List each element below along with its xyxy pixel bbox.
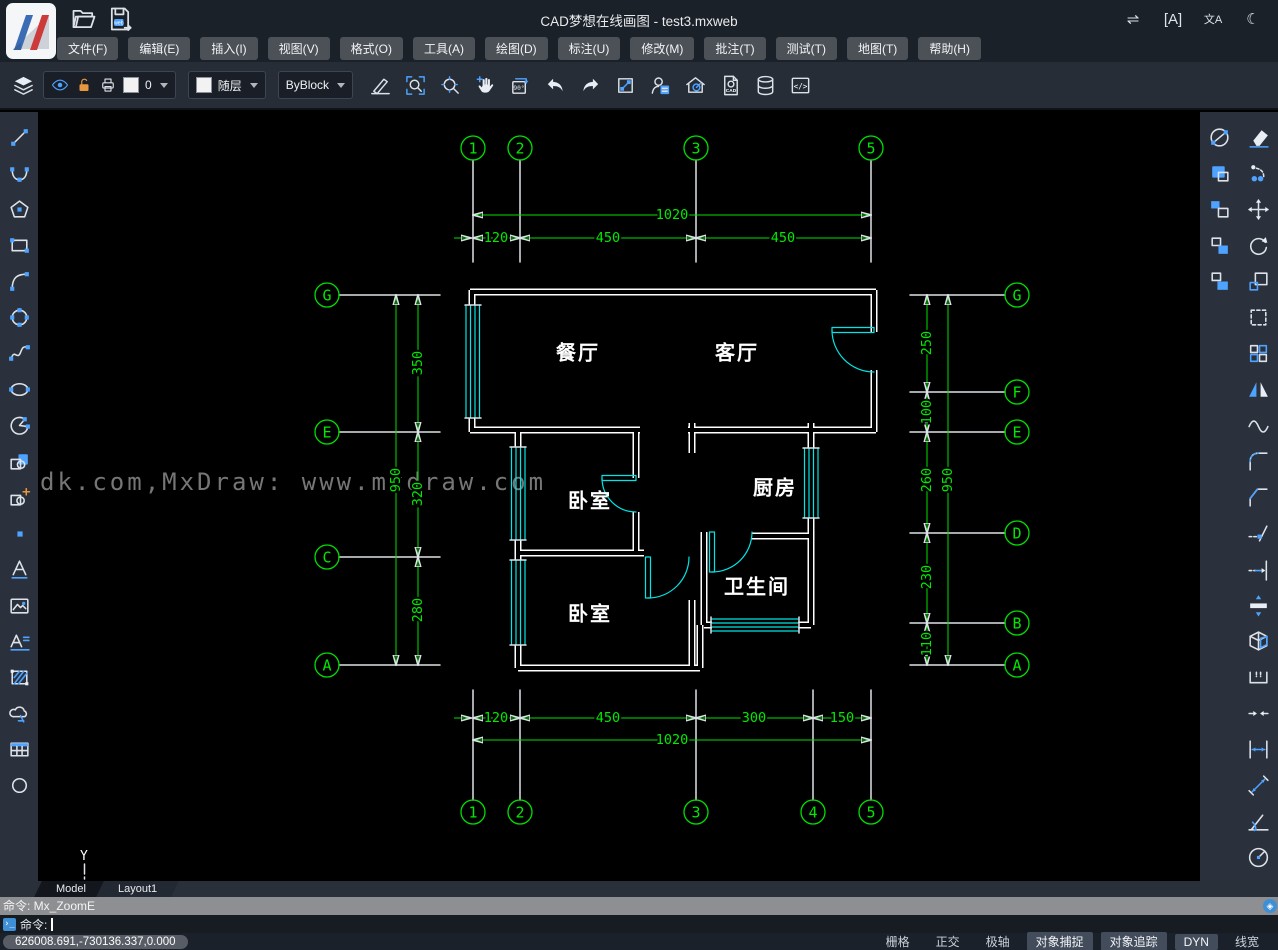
zoom-extents-icon [439,74,462,97]
svg-text:150: 150 [830,710,854,726]
zoom-window-icon [404,74,427,97]
svg-text:300: 300 [742,710,766,726]
statusbar: 626008.691,-730136.337,0.000 栅格正交极轴对象捕捉对… [0,933,1278,950]
modify-tools-panel [1200,112,1278,881]
redo-icon [579,74,602,97]
svg-text:120: 120 [484,230,508,246]
svg-text:B: B [1012,615,1021,633]
menubar-item-1[interactable]: 编辑(E) [128,37,190,60]
svg-text:450: 450 [596,230,620,246]
color-dropdown-caret-icon[interactable] [250,83,258,88]
current-layer-name: 0 [145,78,152,92]
zoom-extents-button[interactable] [435,70,465,100]
ellipse-icon [7,377,32,402]
svg-text:F: F [1012,384,1021,402]
night-mode-icon[interactable]: ☾ [1242,8,1264,30]
copy-icon [1246,161,1271,186]
image-icon [7,593,32,618]
chamfer-icon [1246,485,1271,510]
menubar-item-4[interactable]: 格式(O) [340,37,403,60]
tool-copy-object-button[interactable] [1206,159,1234,187]
doors[interactable] [602,328,874,599]
titlebar: web CAD梦想在线画图 - test3.mxweb ⇌ [A] 文A ☾ 文… [0,0,1278,62]
revision-cloud-icon [7,701,32,726]
svg-text:G: G [322,287,331,305]
svg-text:110: 110 [919,632,935,656]
room-label-bedroom1: 卧室 [568,489,612,513]
titlebar-actions: ⇌ [A] 文A ☾ [1122,8,1264,30]
tool-polygon-button[interactable] [5,195,33,223]
translate-icon[interactable]: 文A [1202,8,1224,30]
svg-text:2: 2 [515,804,524,822]
svg-text:280: 280 [410,598,426,622]
menubar-item-7[interactable]: 标注(U) [558,37,621,60]
tool-table-button[interactable] [5,735,33,763]
measure-icon [614,74,637,97]
svg-text:1: 1 [468,140,477,158]
svg-text:4: 4 [808,804,817,822]
menubar-item-3[interactable]: 视图(V) [268,37,330,60]
menubar: 文件(F)编辑(E)插入(I)视图(V)格式(O)工具(A)绘图(D)标注(U)… [57,37,981,60]
lineweight-button[interactable] [365,70,395,100]
floorplan-drawing[interactable]: .dim{stroke:#00e000;stroke-width:1;fill:… [38,112,1200,881]
status-toggle-0[interactable]: 栅格 [877,932,919,950]
tool-copy-with-base-button[interactable] [1206,267,1234,295]
table-icon [7,737,32,762]
status-toggles: 栅格正交极轴对象捕捉对象追踪DYN线宽 [869,932,1268,950]
select-icon [1246,305,1271,330]
tool-explode-button[interactable] [1245,627,1273,655]
room-labels[interactable]: 餐厅 客厅 卧室 厨房 卫生间 卧室 [556,341,797,626]
rectangle-icon [7,233,32,258]
polygon-icon [7,197,32,222]
copy-with-base-icon [1207,269,1232,294]
tool-mtext-button[interactable] [5,627,33,655]
svg-text:950: 950 [940,468,956,492]
modify-tools-column-2 [1239,112,1278,871]
spline-icon [7,341,32,366]
point-icon [7,521,32,546]
undo-icon [544,74,567,97]
room-label-kitchen: 厨房 [753,476,797,500]
line-icon [7,125,32,150]
status-toggle-3[interactable]: 对象捕捉 [1027,932,1093,950]
tool-insert-block-button[interactable] [5,447,33,475]
undo-button[interactable] [540,70,570,100]
main-toolbar: 0 随层 ByBlock 90° CAD </> [0,62,1278,110]
tool-donut-button[interactable] [5,771,33,799]
tool-stretch-button[interactable] [1245,591,1273,619]
unlock-icon [75,76,93,94]
tool-fillet-button[interactable] [1245,447,1273,475]
menubar-item-5[interactable]: 工具(A) [413,37,475,60]
layer-color-swatch[interactable] [123,77,139,93]
tool-select-button[interactable] [1245,303,1273,331]
svg-text:120: 120 [484,710,508,726]
array-icon [1246,341,1271,366]
tool-rotate-button[interactable] [1245,231,1273,259]
redo-button[interactable] [575,70,605,100]
command-caret [51,918,53,931]
tool-mirror-button[interactable] [1245,375,1273,403]
pie-icon [7,413,32,438]
tool-pie-button[interactable] [5,411,33,439]
svg-text:950: 950 [388,468,404,492]
insert-block-plus-icon [7,485,32,510]
modify-tools-column-1 [1200,112,1239,871]
mirror-icon [1246,377,1271,402]
tool-insert-block-plus-button[interactable] [5,483,33,511]
menubar-item-12[interactable]: 帮助(H) [918,37,981,60]
fit-spline-icon [1246,413,1271,438]
tool-construction-line-button[interactable] [1206,123,1234,151]
copy-object-icon [1207,161,1232,186]
arc-icon [7,161,32,186]
extend-icon [1246,557,1271,582]
svg-text:1020: 1020 [656,207,689,223]
svg-text:A: A [1012,657,1021,675]
status-toggle-5[interactable]: DYN [1175,934,1218,950]
linetype-dropdown-caret-icon[interactable] [337,83,345,88]
construction-line-icon [1207,125,1232,150]
svg-text:1020: 1020 [656,732,689,748]
cad-app-window: web CAD梦想在线画图 - test3.mxweb ⇌ [A] 文A ☾ 文… [0,0,1278,950]
status-toggle-4[interactable]: 对象追踪 [1101,932,1167,950]
svg-text:230: 230 [919,565,935,589]
tool-array-button[interactable] [1245,339,1273,367]
tool-arc-button[interactable] [5,159,33,187]
svg-text:C: C [322,549,331,567]
hatch-icon [7,665,32,690]
tool-break-button[interactable] [1245,663,1273,691]
tool-line-button[interactable] [5,123,33,151]
code-button[interactable]: </> [785,70,815,100]
tool-dim-linear-button[interactable] [1245,735,1273,763]
tool-point-button[interactable] [5,519,33,547]
svg-text:100: 100 [919,400,935,424]
tool-image-button[interactable] [5,591,33,619]
room-label-bathroom: 卫生间 [724,575,790,599]
tool-chamfer-button[interactable] [1245,483,1273,511]
layout-tabs: Model Layout1 [0,881,1278,897]
terminal-icon: ›_ [3,918,16,931]
home-design-button[interactable] [680,70,710,100]
svg-text:5: 5 [866,140,875,158]
circle-icon [7,305,32,330]
tool-ellipse-button[interactable] [5,375,33,403]
tool-fit-spline-button[interactable] [1245,411,1273,439]
explode-icon [1246,629,1271,654]
menubar-item-11[interactable]: 地图(T) [847,37,908,60]
donut-icon [7,773,32,798]
user-list-button[interactable] [645,70,675,100]
color-control-group[interactable]: 随层 [188,71,266,99]
cursor-coordinates: 626008.691,-730136.337,0.000 [3,935,188,949]
window-title: CAD梦想在线画图 - test3.mxweb [0,10,1278,30]
svg-text:3: 3 [691,140,700,158]
svg-text:450: 450 [596,710,620,726]
room-label-dining: 餐厅 [556,341,600,365]
svg-text:1: 1 [468,804,477,822]
database-icon [754,74,777,97]
tool-trim-button[interactable] [1245,519,1273,547]
scale-icon [1246,269,1271,294]
stretch-icon [1246,593,1271,618]
status-toggle-2[interactable]: 极轴 [977,932,1019,950]
cad-file-button[interactable]: CAD [715,70,745,100]
svg-text:Y: Y [80,849,88,864]
find-text-icon[interactable]: [A] [1162,8,1184,30]
layer-control-group[interactable]: 0 [43,71,176,99]
current-linetype: ByBlock [286,78,329,92]
svg-text:260: 260 [919,468,935,492]
break-icon [1246,665,1271,690]
menubar-item-9[interactable]: 批注(T) [704,37,765,60]
paste-block-icon [1207,197,1232,222]
eye-icon [51,76,69,94]
insert-block-icon [7,449,32,474]
svg-text:90°: 90° [513,83,524,91]
fillet-icon [1246,449,1271,474]
tool-copy-button[interactable] [1245,159,1273,187]
tool-copy-block-button[interactable] [1206,231,1234,259]
menubar-item-6[interactable]: 绘图(D) [485,37,548,60]
measure-button[interactable] [610,70,640,100]
svg-text:E: E [1012,424,1021,442]
tool-circle-button[interactable] [5,303,33,331]
tool-text-button[interactable] [5,555,33,583]
printer-icon [99,76,117,94]
menubar-item-8[interactable]: 修改(M) [630,37,694,60]
svg-text:A: A [322,657,331,675]
tab-layout1[interactable]: Layout1 [96,881,179,897]
room-label-bedroom2: 卧室 [568,602,612,626]
erase-icon [1246,125,1271,150]
svg-text:E: E [322,424,331,442]
tool-rectangle-button[interactable] [5,231,33,259]
tool-spline-button[interactable] [5,339,33,367]
drawing-canvas[interactable]: .dim{stroke:#00e000;stroke-width:1;fill:… [38,112,1200,881]
code-icon: </> [789,74,812,97]
tab-model-label: Model [56,883,86,895]
copy-block-icon [1207,233,1232,258]
home-design-icon [684,74,707,97]
layer-lock-icon[interactable] [75,76,93,94]
ucs-icon: Y [80,849,88,879]
room-label-living: 客厅 [714,341,759,365]
layer-visibility-icon[interactable] [51,76,69,94]
tool-arc-start-end-button[interactable] [5,267,33,295]
svg-text:320: 320 [410,482,426,506]
svg-text:5: 5 [866,804,875,822]
tool-move-button[interactable] [1245,195,1273,223]
tool-erase-button[interactable] [1245,123,1273,151]
layers-button[interactable] [8,70,38,100]
tool-extend-button[interactable] [1245,555,1273,583]
text-icon [7,557,32,582]
status-toggle-6[interactable]: 线宽 [1226,932,1268,950]
command-history-expand-button[interactable]: ◈ [1263,899,1277,913]
trim-icon [1246,521,1271,546]
cad-file-icon: CAD [719,74,742,97]
watermark: dk.com,MxDraw: www.mxdraw.com [40,468,546,496]
svg-text:450: 450 [771,230,795,246]
svg-text:G: G [1012,287,1021,305]
tool-dim-aligned-button[interactable] [1245,771,1273,799]
tool-dim-radius-button[interactable] [1245,843,1273,871]
tool-scale-button[interactable] [1245,267,1273,295]
rotate-90-icon: 90° [509,74,532,97]
layer-dropdown-caret-icon[interactable] [160,83,168,88]
layers-icon [12,74,35,97]
tool-revision-cloud-button[interactable] [5,699,33,727]
database-button[interactable] [750,70,780,100]
draw-tools-panel [0,112,38,881]
command-history[interactable]: 命令: Mx_ZoomE [0,897,1278,915]
tool-dim-angular-button[interactable] [1245,807,1273,835]
current-color-name: 随层 [218,77,242,94]
move-icon [1246,197,1271,222]
svg-text:</>: </> [793,81,807,90]
swap-horizontal-icon[interactable]: ⇌ [1122,8,1144,30]
layer-print-icon[interactable] [99,76,117,94]
lineweight-pen-icon [369,74,392,97]
tool-join-button[interactable] [1245,699,1273,727]
command-prompt: 命令: [20,916,47,933]
join-icon [1246,701,1271,726]
dim-angular-icon [1246,809,1271,834]
svg-text:2: 2 [515,140,524,158]
svg-text:250: 250 [919,331,935,355]
zoom-window-button[interactable] [400,70,430,100]
dim-aligned-icon [1246,773,1271,798]
svg-text:CAD: CAD [725,88,736,94]
mtext-icon [7,629,32,654]
menubar-item-2[interactable]: 插入(I) [200,37,257,60]
linetype-control-group[interactable]: ByBlock [278,71,353,99]
draw-tools-column [0,112,38,799]
rotate-icon [1246,233,1271,258]
svg-text:D: D [1012,525,1021,543]
current-color-swatch[interactable] [196,77,212,93]
arc-start-end-icon [7,269,32,294]
user-list-icon [649,74,672,97]
svg-text:350: 350 [410,351,426,375]
menubar-item-0[interactable]: 文件(F) [57,37,118,60]
pan-icon [474,74,497,97]
pan-button[interactable] [470,70,500,100]
status-toggle-1[interactable]: 正交 [927,932,969,950]
rotate-view-button[interactable]: 90° [505,70,535,100]
menubar-item-10[interactable]: 测试(T) [776,37,837,60]
tab-layout1-label: Layout1 [118,883,157,895]
tool-hatch-button[interactable] [5,663,33,691]
command-line[interactable]: ›_ 命令: [0,915,1278,933]
dim-radius-icon [1246,845,1271,870]
svg-text:3: 3 [691,804,700,822]
dim-linear-icon [1246,737,1271,762]
tool-paste-block-button[interactable] [1206,195,1234,223]
